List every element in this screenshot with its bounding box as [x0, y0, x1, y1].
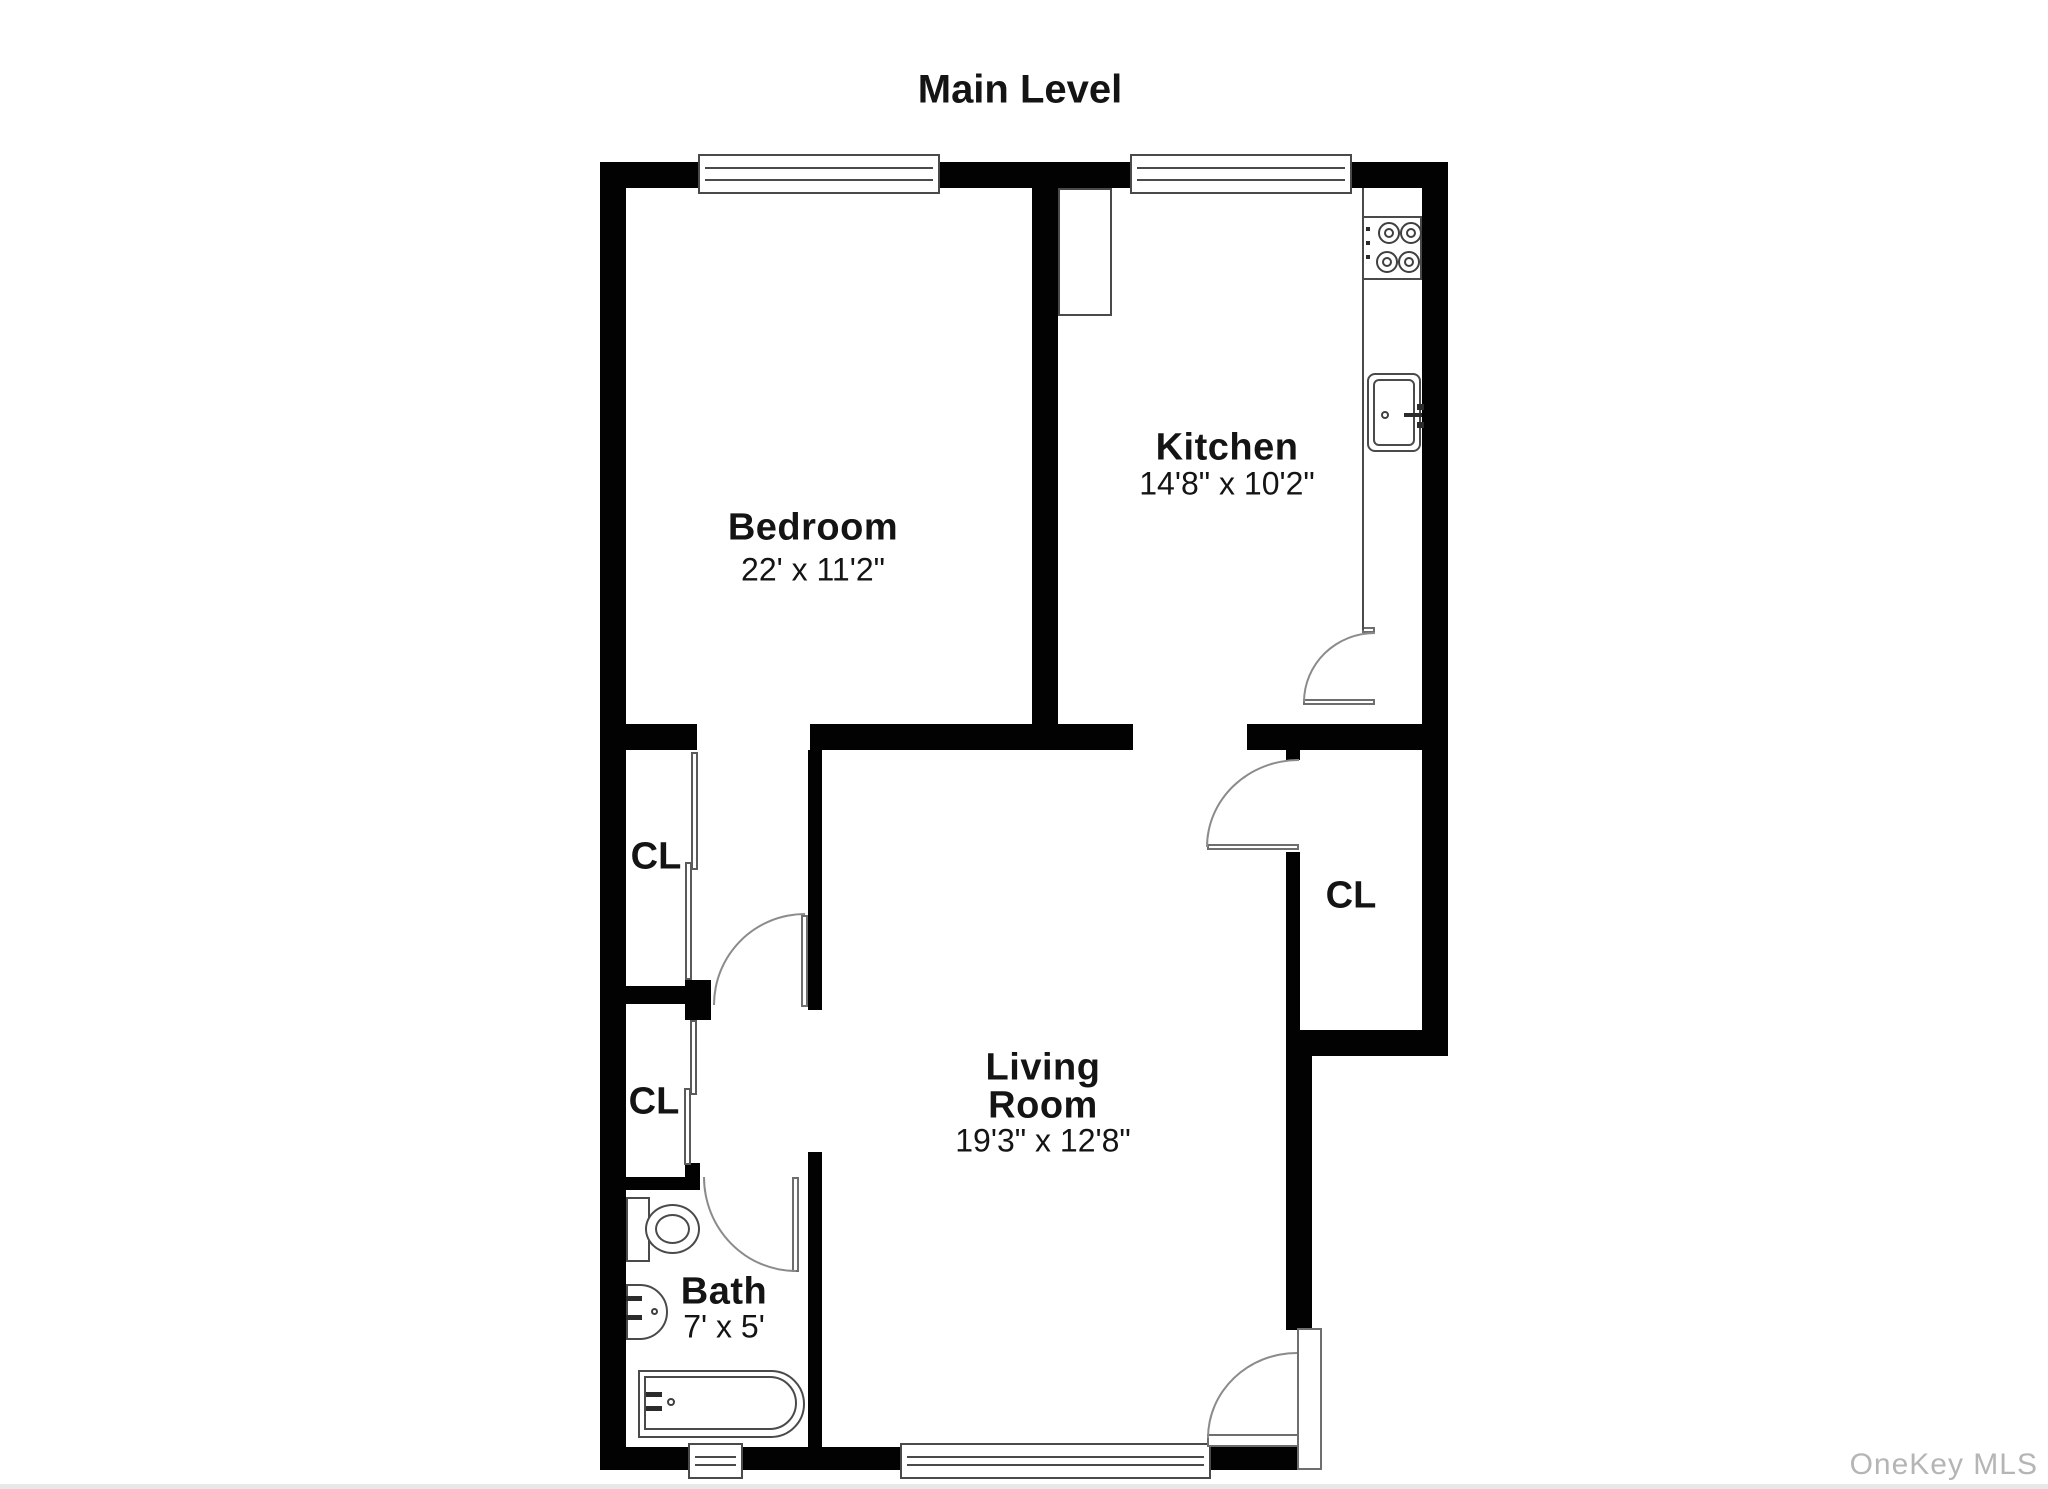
stove-burner-4: [1398, 251, 1420, 273]
wall-right: [1422, 162, 1448, 1056]
wall-bedroom-kitchen-divider: [1032, 188, 1058, 750]
wall-bottom-left: [600, 1447, 688, 1470]
wall-left: [600, 162, 626, 1470]
stove-burner-1: [1378, 222, 1400, 244]
bathtub: [638, 1370, 805, 1438]
living-room-window: [900, 1443, 1211, 1479]
living-room-dimensions: 19'3" x 12'8": [955, 1123, 1131, 1160]
bath-window-glass: [695, 1456, 736, 1466]
bedroom-window: [698, 154, 940, 194]
stove-knob-3: [1366, 255, 1370, 259]
bottom-edge-strip: [0, 1484, 2048, 1489]
stove-burner-2: [1400, 222, 1422, 244]
living-room-label-line1: Living: [986, 1047, 1101, 1090]
bath-dimensions: 7' x 5': [683, 1309, 765, 1346]
living-room-label-line2: Room: [988, 1085, 1098, 1128]
kitchen-sink-drain: [1381, 411, 1389, 419]
bath-sink-tap-1: [626, 1296, 642, 1301]
stove-knob-2: [1366, 241, 1370, 245]
bath-label: Bath: [681, 1271, 767, 1314]
entry-door-arc: [1207, 1352, 1297, 1438]
bath-sink-tap-2: [626, 1315, 642, 1320]
bedroom-dimensions: 22' x 11'2": [741, 552, 885, 589]
bath-window: [688, 1443, 743, 1479]
closet1-label: CL: [631, 836, 682, 879]
floor-plan: Main Level Bedroom 22' x 11'2" Kitchen 1…: [0, 0, 2048, 1489]
bath-door-arc: [703, 1177, 796, 1272]
wall-closet1-top: [626, 724, 697, 750]
kitchen-door-arc: [1303, 632, 1375, 702]
living-room-window-glass: [907, 1456, 1204, 1466]
closet1-sliding-door-panel-b: [685, 862, 692, 980]
kitchen-faucet: [1404, 413, 1422, 417]
entry-door-frame: [1297, 1328, 1322, 1470]
wall-bottom-middle: [743, 1447, 900, 1470]
bedroom-label: Bedroom: [728, 507, 898, 550]
hall-door-arc: [713, 913, 805, 1005]
kitchen-label: Kitchen: [1156, 427, 1299, 470]
closet3-label: CL: [1326, 875, 1377, 918]
closet3-door-arc: [1206, 759, 1299, 847]
kitchen-faucet-handle-2: [1417, 422, 1424, 428]
watermark: OneKey MLS: [1850, 1448, 2038, 1482]
stove-knob-1: [1366, 227, 1370, 231]
closet2-label: CL: [629, 1081, 680, 1124]
wall-closet2-bottom-block: [685, 1163, 700, 1190]
wall-top-middle: [940, 162, 1130, 188]
bathtub-tap-2: [646, 1406, 662, 1411]
kitchen-dimensions: 14'8" x 10'2": [1139, 466, 1315, 503]
wall-living-right: [1286, 1030, 1312, 1330]
bedroom-window-glass: [705, 167, 933, 181]
refrigerator: [1058, 188, 1112, 316]
wall-bedroom-south: [810, 724, 1133, 750]
wall-kitchen-south: [1247, 724, 1422, 750]
stove-burner-3: [1376, 251, 1398, 273]
closet2-sliding-door-panel-b: [684, 1088, 691, 1165]
bathtub-drain: [667, 1398, 675, 1406]
toilet-bowl-inner: [655, 1214, 690, 1244]
kitchen-faucet-handle-1: [1417, 404, 1424, 410]
wall-closet3-bottom: [1300, 1030, 1448, 1056]
kitchen-window-glass: [1137, 167, 1345, 181]
wall-hall-living-upper: [808, 750, 822, 1010]
bath-sink-drain: [651, 1308, 658, 1315]
bathtub-tap-1: [646, 1392, 662, 1397]
closet2-sliding-door-panel-a: [690, 1020, 697, 1095]
kitchen-window: [1130, 154, 1352, 194]
wall-closet-divider-block: [685, 980, 711, 1020]
wall-closet3-left-lower: [1286, 852, 1300, 1032]
wall-closet1-closet2-divider: [626, 986, 685, 1004]
plan-title: Main Level: [918, 68, 1123, 113]
closet1-sliding-door-panel-a: [691, 752, 698, 870]
bath-sink: [626, 1284, 668, 1340]
wall-hall-living-lower: [808, 1152, 822, 1447]
